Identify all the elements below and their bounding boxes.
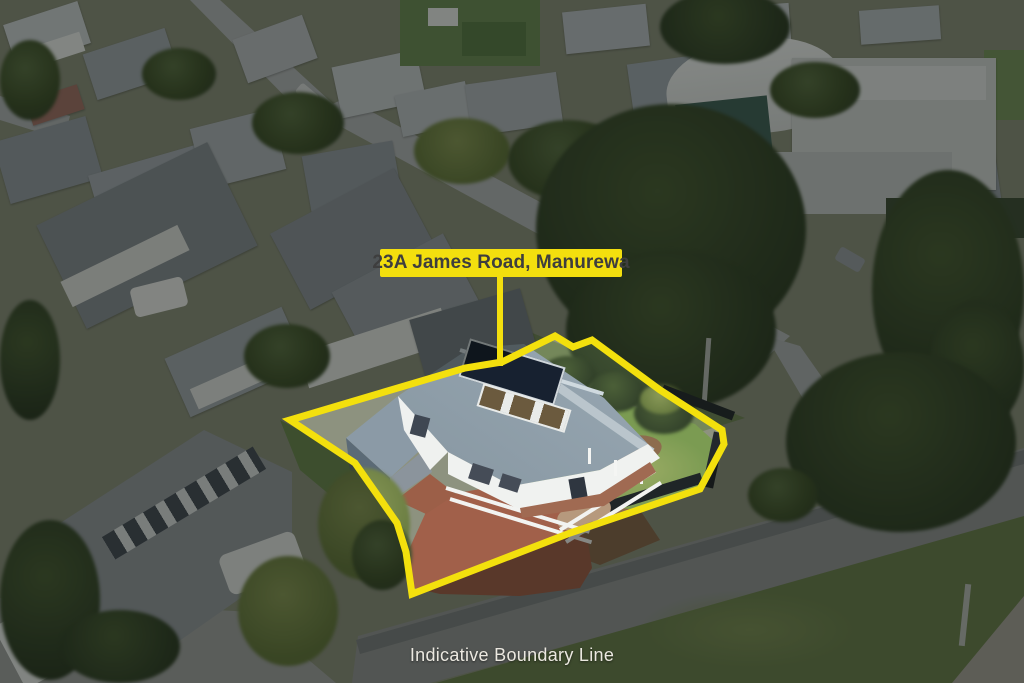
subject-house bbox=[0, 0, 1024, 683]
aerial-photo: 23A James Road, Manurewa Indicative Boun… bbox=[0, 0, 1024, 683]
front-door bbox=[568, 477, 587, 499]
label-pointer-line bbox=[497, 276, 503, 366]
main-roof bbox=[0, 0, 1024, 683]
porch-bricks bbox=[0, 0, 1024, 683]
garage-roof bbox=[0, 0, 1024, 683]
front-wall bbox=[0, 0, 1024, 683]
garage-door bbox=[0, 0, 1024, 683]
photo-scene bbox=[0, 0, 1024, 683]
boundary-caption: Indicative Boundary Line bbox=[0, 645, 1024, 666]
gable-wall bbox=[0, 0, 1024, 683]
veranda-post bbox=[614, 460, 617, 476]
veranda-post bbox=[588, 448, 591, 464]
palm-plant bbox=[352, 520, 412, 590]
property-address-label: 23A James Road, Manurewa bbox=[380, 249, 622, 277]
garage-wall bbox=[0, 0, 1024, 683]
